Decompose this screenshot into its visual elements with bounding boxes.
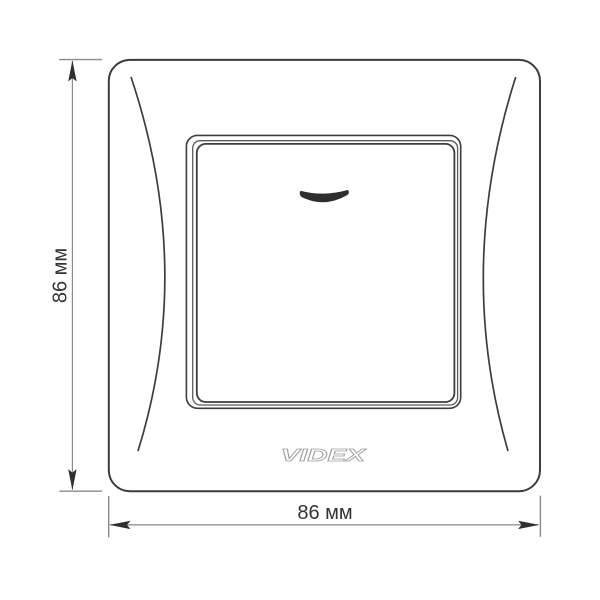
svg-text:86 мм: 86 мм bbox=[297, 502, 352, 524]
svg-text:86 мм: 86 мм bbox=[50, 248, 72, 303]
svg-text:VIDEX: VIDEX bbox=[281, 445, 367, 465]
